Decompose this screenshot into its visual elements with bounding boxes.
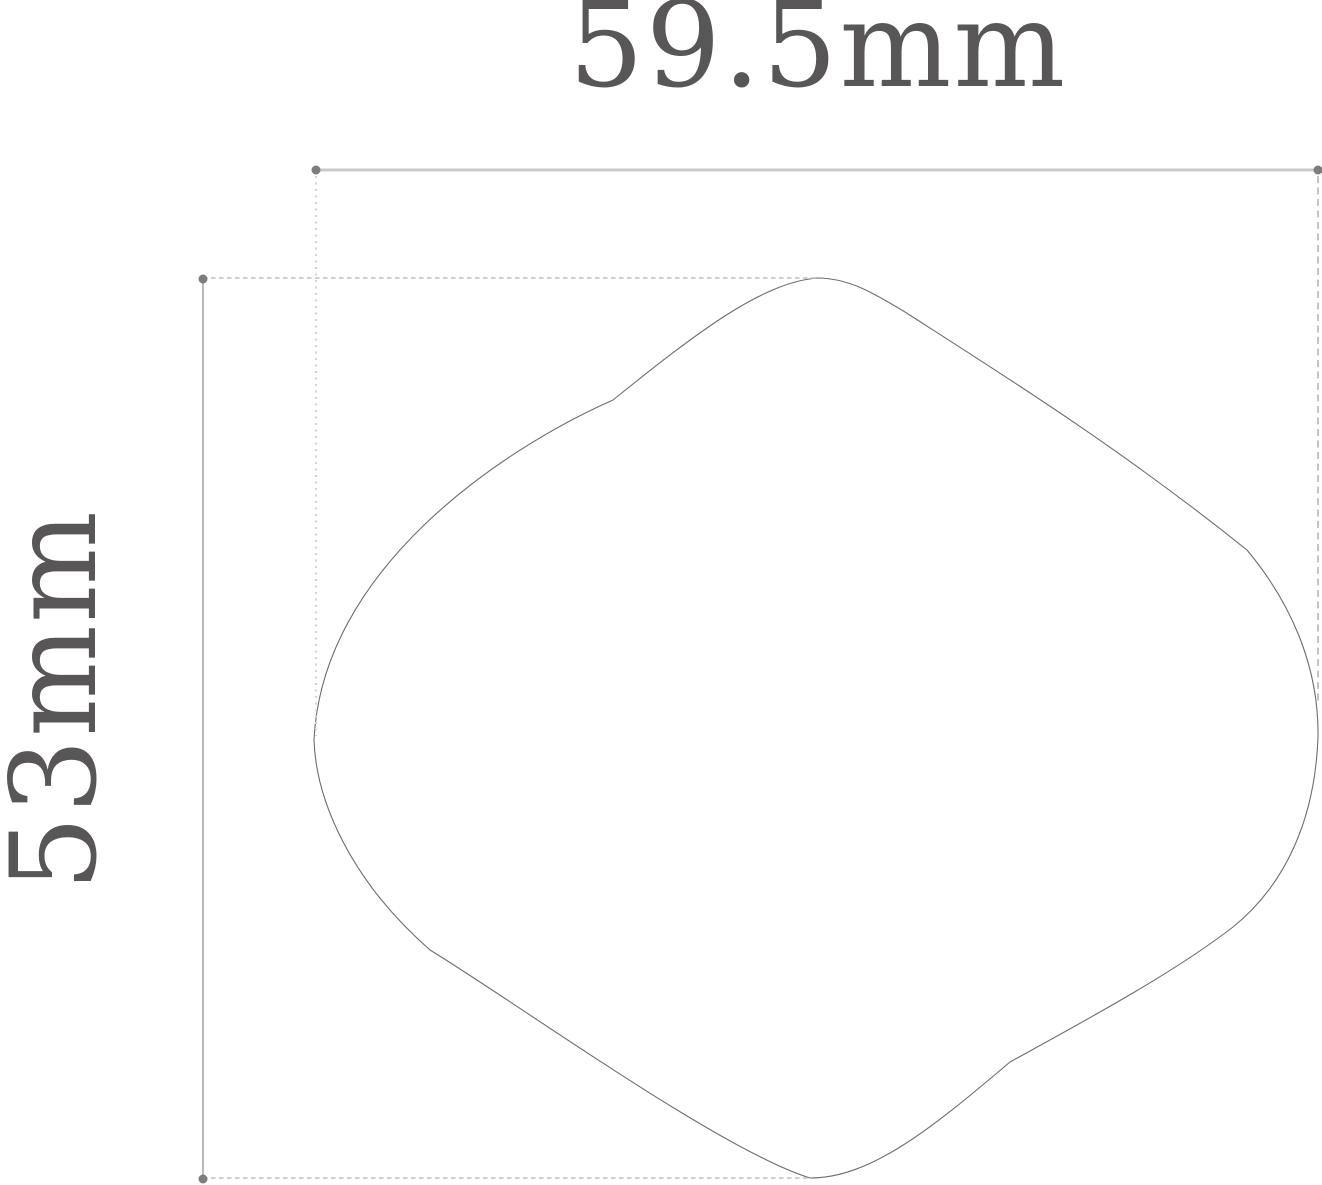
drawing-canvas: 59.5mm 53mm [0, 0, 1322, 1185]
dimension-drawing [0, 0, 1322, 1185]
width-dimension-endpoint-dot-left [312, 166, 321, 175]
shape-outline [314, 278, 1318, 1178]
width-dimension-label: 59.5mm [518, 0, 1118, 104]
height-dimension-endpoint-dot-bottom [199, 1175, 208, 1184]
height-dimension-endpoint-dot-top [199, 275, 208, 284]
width-dimension-endpoint-dot-right [1314, 166, 1322, 175]
height-dimension-label: 53mm [0, 450, 113, 950]
